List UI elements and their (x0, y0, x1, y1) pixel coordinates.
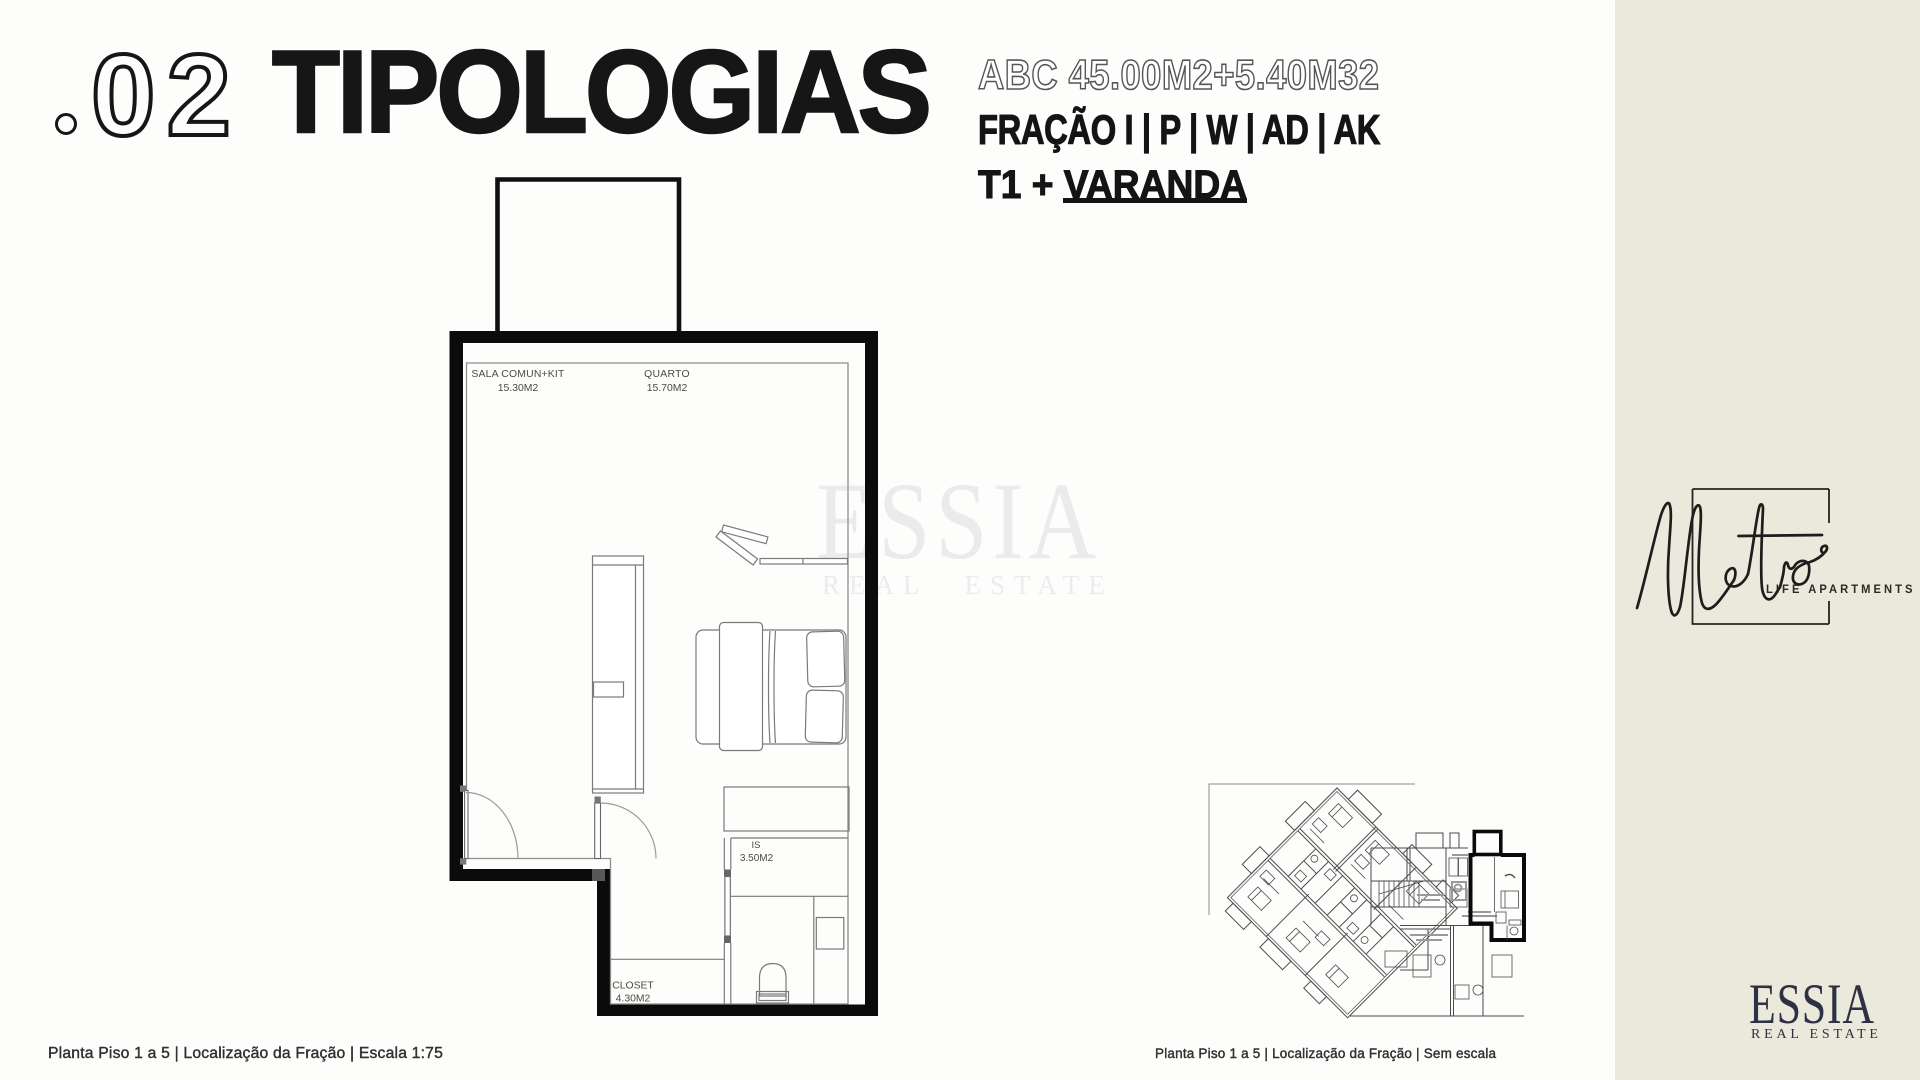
svg-text:SALA COMUN+KIT: SALA COMUN+KIT (471, 369, 565, 380)
svg-text:15.30M2: 15.30M2 (498, 383, 539, 394)
svg-text:QUARTO: QUARTO (644, 369, 690, 380)
svg-text:3.50M2: 3.50M2 (740, 853, 774, 864)
svg-text:CLOSET: CLOSET (612, 981, 654, 992)
svg-text:15.70M2: 15.70M2 (647, 383, 688, 394)
svg-text:IS: IS (751, 840, 760, 851)
svg-text:4.30M2: 4.30M2 (616, 994, 651, 1005)
